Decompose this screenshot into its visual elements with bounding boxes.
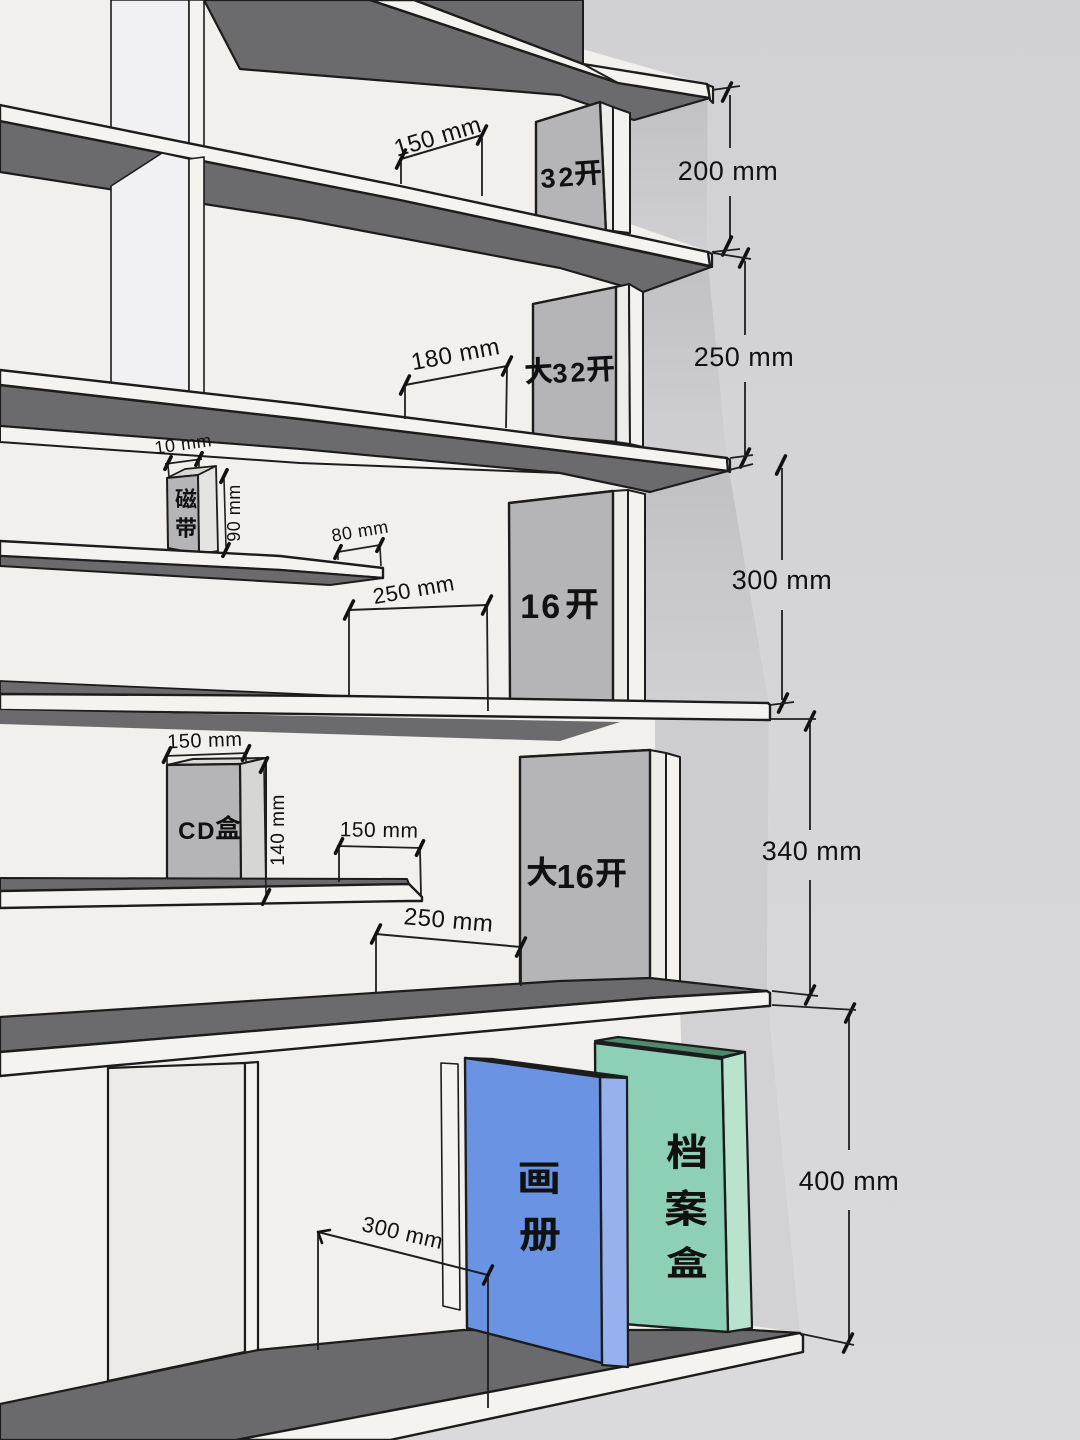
svg-text:300 mm: 300 mm xyxy=(732,565,833,595)
svg-text:90 mm: 90 mm xyxy=(224,484,244,542)
svg-text:2: 2 xyxy=(557,162,575,193)
svg-text:6: 6 xyxy=(576,858,595,895)
svg-text:6: 6 xyxy=(541,588,560,626)
svg-text:140 mm: 140 mm xyxy=(268,794,289,866)
svg-text:3: 3 xyxy=(539,163,557,194)
svg-text:400 mm: 400 mm xyxy=(799,1166,900,1196)
svg-text:150 mm: 150 mm xyxy=(339,818,418,842)
svg-text:1: 1 xyxy=(520,588,539,626)
svg-text:C: C xyxy=(178,818,196,845)
svg-text:250 mm: 250 mm xyxy=(694,342,795,372)
svg-text:340 mm: 340 mm xyxy=(762,836,863,866)
svg-text:1: 1 xyxy=(557,858,576,895)
svg-text:3: 3 xyxy=(552,358,569,389)
svg-text:D: D xyxy=(197,818,215,845)
svg-text:150 mm: 150 mm xyxy=(167,729,243,754)
svg-text:200 mm: 200 mm xyxy=(678,156,779,186)
svg-text:2: 2 xyxy=(570,357,587,388)
